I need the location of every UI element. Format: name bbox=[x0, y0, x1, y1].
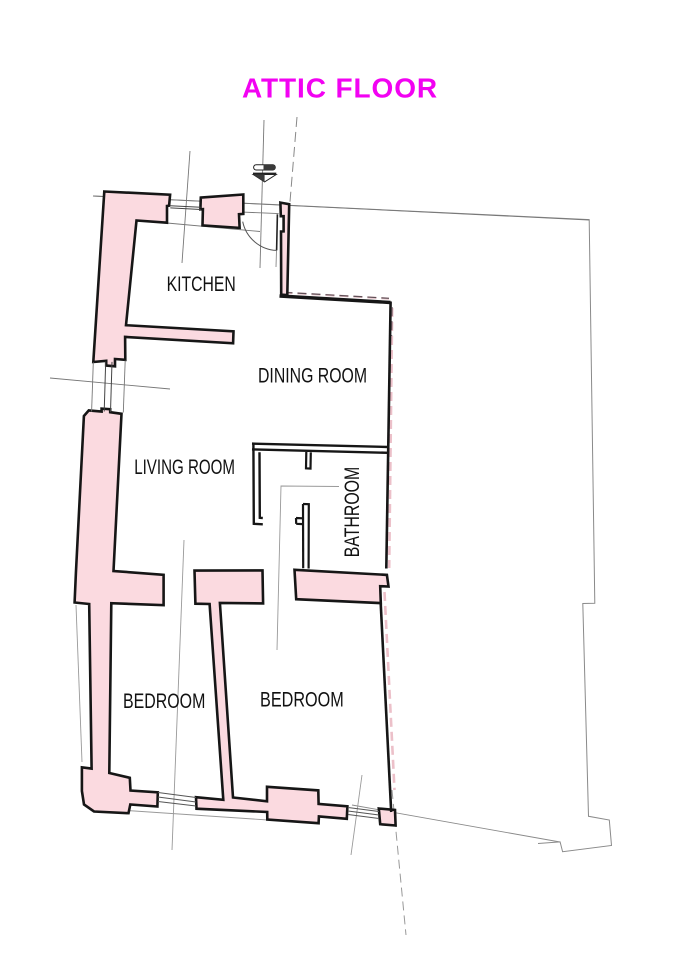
svg-text:KITCHEN: KITCHEN bbox=[167, 273, 236, 296]
svg-text:ATTIC FLOOR: ATTIC FLOOR bbox=[242, 73, 438, 104]
svg-text:LIVING ROOM: LIVING ROOM bbox=[134, 456, 235, 479]
svg-text:BATHROOM: BATHROOM bbox=[341, 467, 364, 557]
svg-text:BEDROOM: BEDROOM bbox=[260, 689, 344, 712]
svg-text:BEDROOM: BEDROOM bbox=[123, 690, 205, 713]
svg-text:DINING ROOM: DINING ROOM bbox=[258, 365, 367, 388]
